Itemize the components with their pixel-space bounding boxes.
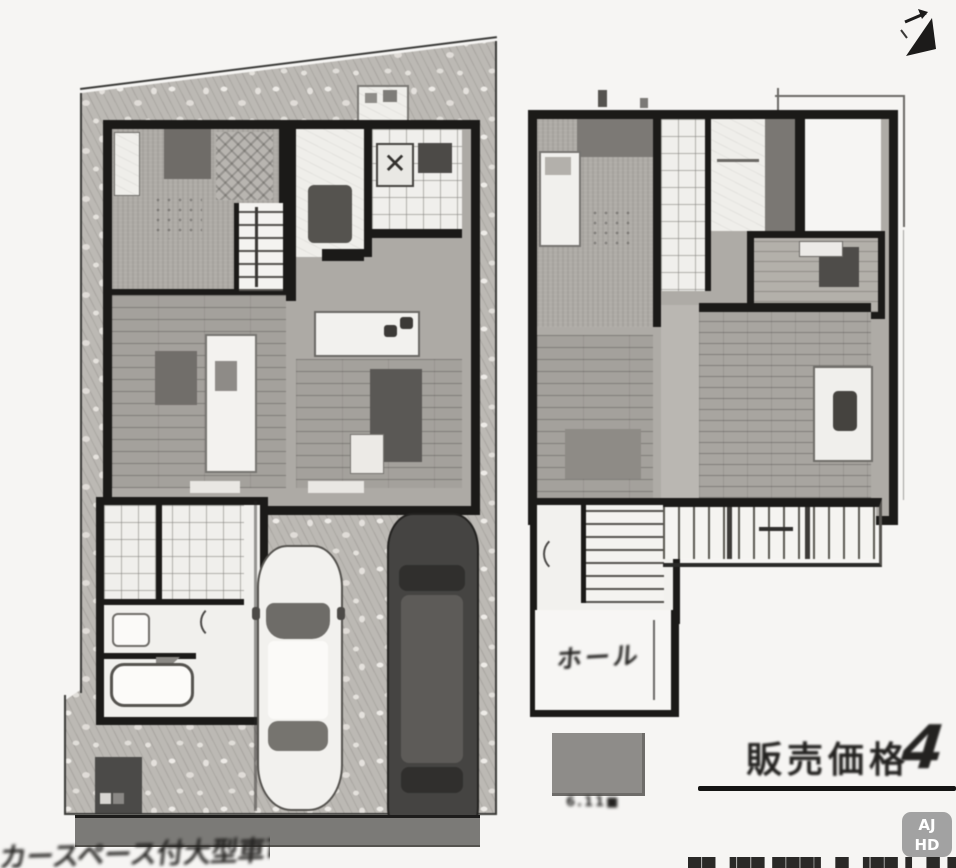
wall-wash-h2 [104, 653, 196, 659]
hall-window [653, 620, 655, 700]
opening-1f-south-2 [308, 481, 364, 493]
hall-label: ホール [556, 636, 642, 677]
garden-pad [95, 757, 142, 813]
wall-1f-center [286, 129, 296, 301]
roof-mark-1 [598, 90, 607, 107]
car-dark-roof [401, 595, 463, 763]
balcony-post-1 [727, 507, 732, 559]
side-boundary-line [903, 230, 904, 500]
roof-notch [795, 119, 881, 242]
sink-1f [400, 317, 413, 329]
roof-line-h [775, 95, 905, 97]
porch-step-2 [383, 90, 397, 102]
bathtub [110, 663, 194, 707]
low-table-1f [155, 351, 197, 405]
rug-2f-c [565, 429, 641, 479]
car-white-mirror-l [252, 607, 260, 620]
roof-line-v [903, 95, 905, 227]
staircase-2f-block [530, 498, 680, 624]
hall-2f [661, 305, 699, 498]
first-floor-plan: ✕ [58, 33, 498, 825]
watermark-line2: HD [902, 835, 952, 855]
lot-boundary-left [80, 93, 82, 693]
porch-step [365, 93, 377, 103]
staircase-2f [581, 505, 664, 603]
car-white-rear-window [268, 721, 328, 751]
door-arc-2f [543, 535, 581, 573]
north-arrow-icon [893, 6, 945, 64]
hall-room-2f: ホール [530, 610, 679, 717]
roof-mark-2 [640, 98, 648, 108]
wall-1f-utility-shelf [322, 249, 364, 261]
roof-tick [777, 88, 779, 112]
bed-1f [164, 129, 211, 179]
car-top-view-white-icon [257, 545, 343, 811]
building-1f-washblock [96, 497, 268, 725]
building-2f [528, 110, 898, 525]
price-underline [698, 786, 956, 791]
genkan-1f [216, 132, 273, 200]
balcony-railing [663, 507, 876, 559]
pad-mark-gray [113, 793, 124, 804]
balcony-post-2 [805, 507, 810, 559]
wall-wash-h1 [104, 599, 244, 605]
clipped-bottom-text-wrap: ██ ▐██ ███▌ █ ▐██ ▌ █ █ [688, 857, 956, 868]
balcony-2f [663, 498, 882, 567]
closet-1f [114, 132, 140, 196]
washroom-tile [104, 505, 244, 599]
vanity-basin [112, 613, 150, 647]
price-label: 販売価格 [746, 731, 910, 783]
lot-boundary-left-lower [64, 695, 66, 815]
car-dark-rear-window [401, 767, 463, 793]
sofa-1f [205, 334, 257, 473]
balcony-handrail-mark [759, 527, 793, 531]
tv-board-1f [350, 434, 384, 474]
watermark-line1: AJ [902, 815, 952, 835]
pad-mark-light [100, 793, 111, 804]
car-white-mirror-r [337, 607, 345, 620]
appliance-x-1f: ✕ [376, 143, 414, 187]
watermark-badge: AJ HD [902, 812, 952, 857]
car-top-view-dark-icon [387, 513, 479, 843]
wall-2f-midh [699, 303, 871, 312]
fridge-1f [418, 143, 452, 173]
note-bottom-left: カースペース付大型車可。 [0, 832, 270, 868]
car-white-roof [268, 641, 328, 719]
closet-2f-a [661, 119, 705, 291]
rug-1f-bedroom [152, 194, 202, 239]
lot-boundary-right [495, 41, 497, 815]
car-white-windshield [266, 603, 330, 639]
sofa-1f-cushion [215, 361, 237, 391]
stove-1f [384, 325, 397, 337]
staircase-1f-rail [255, 207, 258, 287]
room-1f-ldk [112, 295, 286, 488]
closet-2f-b [711, 119, 765, 231]
rug-2f-a [589, 207, 633, 245]
clipped-bottom-text: ██ ▐██ ███▌ █ ▐██ ▌ █ █ [688, 857, 956, 868]
legend-swatch [552, 733, 645, 796]
wall-wash-v [156, 505, 162, 601]
room-2f-dark [765, 119, 795, 231]
car-dark-windshield [399, 565, 465, 591]
opening-1f-south-1 [190, 481, 240, 493]
second-floor-plan: ホール [520, 80, 920, 720]
legend-caption: 6.11■ [566, 795, 636, 810]
building-1f: ✕ [103, 120, 480, 515]
shelf-2f-study [799, 241, 843, 257]
washer-1f [308, 185, 352, 243]
staircase-1f [234, 203, 288, 291]
note-bottom-left-wrap: カースペース付大型車可。 [0, 832, 270, 868]
flyer-canvas: ✕ [0, 0, 956, 868]
price-partial-digit: 4 [898, 713, 947, 783]
bed-2f-pillow [545, 157, 571, 175]
wall-1f-kitchen-bottom [364, 229, 462, 238]
closet-2f-b-shelf [717, 159, 759, 162]
door-arc-wash [200, 605, 234, 639]
loft-band-2f [577, 119, 653, 157]
chair-2f-b [833, 391, 857, 431]
